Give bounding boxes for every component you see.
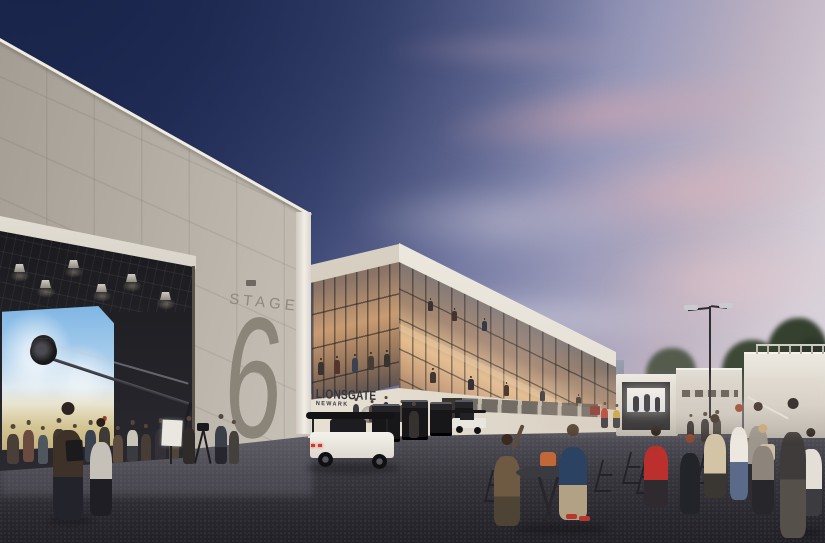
red-sneaker <box>579 516 590 521</box>
street-light-head <box>719 303 733 308</box>
tail-light <box>311 444 315 447</box>
cloud <box>380 30 640 70</box>
person-interior <box>428 298 433 311</box>
crew-member <box>228 420 240 464</box>
wall-light-fixture <box>246 280 256 286</box>
red-sneaker <box>566 514 577 519</box>
person <box>37 426 49 464</box>
studio-campus-rendering: LIONSGATE NEWARK STAGE 6 <box>0 0 825 543</box>
wheel <box>456 426 463 433</box>
person <box>6 424 20 464</box>
street-light-head <box>684 305 698 310</box>
reflector-panel <box>161 419 182 446</box>
golf-cart-canopy <box>306 412 394 419</box>
person-pushing-case <box>408 402 420 438</box>
person-balcony <box>334 356 340 374</box>
stage-corner-trim <box>296 212 311 434</box>
seated-woman-blonde <box>750 424 776 514</box>
atmospheric-haze <box>540 378 825 434</box>
road-case <box>430 402 452 436</box>
seated-man-navy <box>556 424 590 520</box>
orange-bag <box>540 452 556 466</box>
person-interior <box>430 368 436 383</box>
person-balcony <box>352 354 358 372</box>
tripod-camera <box>197 423 209 431</box>
person-interior <box>452 308 457 321</box>
person-balcony <box>318 358 324 375</box>
golf-cart-small-seat <box>460 413 474 420</box>
camera-operator <box>182 416 196 464</box>
panel-stand <box>170 446 172 464</box>
messenger-bag <box>65 439 83 461</box>
person <box>126 420 139 462</box>
crew-member <box>214 414 228 464</box>
trailer-roof-railing <box>756 344 825 354</box>
wheel <box>318 452 333 467</box>
camera-head <box>30 338 57 365</box>
seated-woman-red-top <box>642 426 670 508</box>
person-interior <box>482 318 487 331</box>
wheel <box>474 427 481 434</box>
person-interior <box>504 382 509 396</box>
tail-light <box>318 444 322 447</box>
person-balcony <box>384 350 390 367</box>
person <box>140 424 152 464</box>
walking-woman <box>88 418 114 516</box>
wheel <box>372 454 387 469</box>
seated-woman-dark <box>678 434 702 514</box>
person-balcony <box>368 352 374 370</box>
person-interior <box>468 376 474 390</box>
person <box>22 420 35 462</box>
